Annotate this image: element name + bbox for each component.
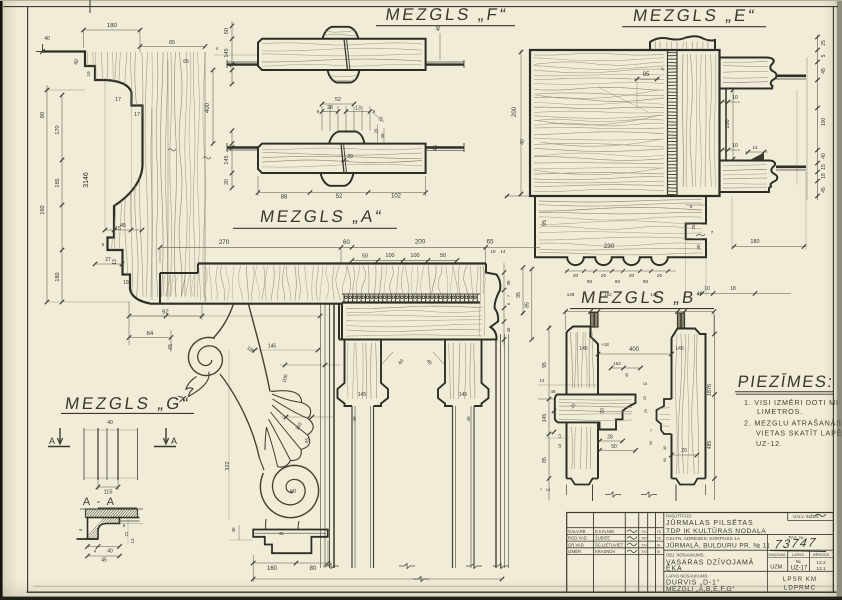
svg-text:20: 20 — [224, 179, 230, 185]
svg-text:95: 95 — [542, 362, 548, 368]
svg-text:30: 30 — [380, 133, 385, 139]
svg-text:270: 270 — [219, 239, 230, 246]
svg-text:LAPAS: LAPAS — [792, 553, 804, 557]
svg-text:17: 17 — [134, 112, 140, 118]
svg-text:40: 40 — [107, 420, 113, 426]
svg-text:65: 65 — [487, 239, 494, 246]
svg-text:OBJ. NOSAUKUMS:: OBJ. NOSAUKUMS: — [666, 553, 705, 558]
svg-text:95: 95 — [516, 292, 522, 298]
svg-text:88: 88 — [281, 195, 288, 201]
svg-text:JŪRMALAS PILSĒTAS: JŪRMALAS PILSĒTAS — [666, 519, 754, 527]
svg-text:92: 92 — [162, 309, 170, 315]
svg-text:148: 148 — [650, 292, 658, 297]
svg-text:162: 162 — [613, 361, 621, 366]
svg-text:10: 10 — [704, 286, 710, 292]
svg-text:7/II: 7/II — [641, 549, 647, 554]
svg-text:40: 40 — [821, 153, 827, 159]
svg-text:ĒKA: ĒKA — [666, 564, 682, 572]
svg-text:GALV. INŽEN.: GALV. INŽEN. — [793, 514, 820, 519]
svg-text:40: 40 — [352, 416, 357, 422]
svg-text:485: 485 — [707, 441, 713, 450]
svg-text:40: 40 — [231, 527, 236, 533]
svg-text:18: 18 — [821, 173, 827, 179]
svg-text:21: 21 — [124, 531, 129, 537]
svg-text:152: 152 — [604, 292, 612, 297]
svg-text:5: 5 — [821, 54, 827, 57]
svg-text:145: 145 — [459, 392, 468, 398]
svg-text:MEZGLS „E“: MEZGLS „E“ — [632, 6, 758, 25]
svg-text:A: A — [171, 436, 177, 446]
svg-text:2. MEZGLU ATRAŠANĀS: 2. MEZGLU ATRAŠANĀS — [744, 419, 842, 428]
svg-text:18: 18 — [730, 286, 736, 292]
svg-text:20: 20 — [573, 273, 579, 279]
svg-text:100: 100 — [385, 253, 394, 259]
svg-text:60: 60 — [587, 279, 593, 285]
svg-text:170: 170 — [55, 125, 61, 134]
svg-text:№: № — [796, 559, 801, 564]
svg-text:MEZGLS „G“: MEZGLS „G“ — [64, 394, 192, 413]
svg-text:45: 45 — [506, 327, 511, 333]
svg-text:45: 45 — [101, 558, 107, 564]
svg-text:45: 45 — [624, 372, 629, 377]
svg-text:30: 30 — [648, 440, 653, 445]
svg-text:MEZGLS „F“: MEZGLS „F“ — [384, 5, 509, 24]
svg-text:13: 13 — [130, 538, 135, 544]
svg-text:UZ-12.: UZ-12. — [756, 439, 783, 448]
svg-text:28: 28 — [327, 105, 333, 111]
svg-text:145: 145 — [268, 344, 277, 350]
svg-text:40: 40 — [74, 59, 80, 65]
svg-text:20: 20 — [629, 273, 635, 279]
svg-text:TDP IK KULTŪRAS NODAĻA: TDP IK KULTŪRAS NODAĻA — [666, 527, 766, 535]
svg-text:45: 45 — [436, 25, 442, 31]
svg-text:25: 25 — [642, 395, 647, 400]
svg-text:IZMĒR.: IZMĒR. — [568, 549, 582, 554]
svg-text:95: 95 — [643, 72, 650, 78]
svg-text:MAŞGWA: MAŞGWA — [768, 553, 786, 557]
svg-text:PASŪTĪTĀJS:: PASŪTĪTĀJS: — [666, 513, 692, 518]
svg-text:MĒRODS: MĒRODS — [813, 553, 830, 557]
svg-text:ŠC.LIETUVIET: ŠC.LIETUVIET — [595, 542, 624, 547]
svg-text:LPSR KM: LPSR KM — [783, 576, 817, 583]
svg-text:80: 80 — [40, 112, 46, 118]
svg-text:25: 25 — [691, 224, 696, 230]
svg-text:148: 148 — [567, 292, 575, 297]
svg-text:A: A — [49, 436, 55, 446]
svg-text:60: 60 — [224, 28, 230, 34]
svg-text:12: 12 — [546, 487, 551, 492]
svg-text:40: 40 — [44, 36, 50, 42]
svg-text:145: 145 — [224, 48, 230, 57]
svg-text:45: 45 — [662, 445, 667, 450]
svg-text:VIETAS SKATĪT LAPĒ: VIETAS SKATĪT LAPĒ — [756, 429, 842, 438]
svg-text:17: 17 — [115, 97, 121, 103]
svg-text:40: 40 — [520, 139, 526, 145]
svg-text:GR.VAD: GR.VAD — [568, 542, 584, 547]
svg-text:13.1: 13.1 — [816, 566, 826, 572]
svg-text:180: 180 — [55, 272, 61, 281]
svg-text:14: 14 — [500, 249, 506, 254]
svg-text:LIMETROS.: LIMETROS. — [757, 407, 803, 416]
svg-text:45: 45 — [433, 145, 439, 151]
svg-text:UZ-17: UZ-17 — [791, 566, 808, 572]
svg-text:45: 45 — [278, 531, 284, 536]
svg-text:13.2: 13.2 — [816, 560, 826, 566]
svg-text:25: 25 — [643, 408, 648, 413]
svg-text:100: 100 — [410, 253, 419, 259]
svg-text:52: 52 — [336, 194, 343, 200]
svg-text:JŪRMALĀ, BULDURU PR. № 11: JŪRMALĀ, BULDURU PR. № 11 — [666, 542, 770, 550]
svg-text:145: 145 — [542, 414, 548, 423]
svg-text:20: 20 — [681, 448, 687, 454]
svg-text:12: 12 — [557, 433, 562, 438]
svg-text:7/II: 7/II — [641, 536, 647, 541]
svg-text:52: 52 — [335, 97, 341, 103]
svg-text:60: 60 — [662, 457, 667, 462]
svg-text:60: 60 — [343, 239, 350, 246]
svg-text:65: 65 — [169, 40, 175, 46]
svg-text:70: 70 — [600, 408, 606, 414]
svg-text:45: 45 — [120, 223, 126, 229]
svg-text:ГII: ГII — [657, 529, 661, 534]
svg-text:10: 10 — [86, 71, 91, 77]
svg-text:38: 38 — [506, 280, 511, 286]
svg-text:145: 145 — [675, 346, 684, 352]
svg-text:13: 13 — [355, 106, 361, 112]
svg-text:100: 100 — [821, 118, 827, 127]
svg-text:18: 18 — [557, 443, 562, 448]
svg-text:100: 100 — [725, 119, 731, 128]
svg-text:KRASNOV: KRASNOV — [595, 549, 616, 554]
svg-text:64: 64 — [146, 331, 154, 337]
svg-text:LAPAS NOSAUKUMS:: LAPAS NOSAUKUMS: — [666, 574, 709, 579]
svg-text:28: 28 — [607, 435, 613, 441]
svg-text:1876: 1876 — [707, 384, 713, 396]
svg-text:160: 160 — [267, 566, 278, 572]
svg-text:MEZGLS „B“: MEZGLS „B“ — [580, 288, 706, 307]
svg-text:200: 200 — [512, 106, 518, 117]
svg-text:E.KALNIŅ: E.KALNIŅ — [595, 529, 614, 534]
svg-text:27: 27 — [105, 257, 111, 263]
svg-text:145: 145 — [358, 392, 367, 398]
svg-text:ГII: ГII — [657, 536, 661, 541]
svg-text:73747: 73747 — [774, 535, 819, 551]
svg-text:20: 20 — [601, 273, 607, 279]
svg-text:180: 180 — [107, 23, 118, 29]
svg-text:50: 50 — [440, 253, 446, 259]
svg-text:PIEZĪMES:: PIEZĪMES: — [736, 372, 835, 391]
svg-text:145: 145 — [224, 155, 230, 164]
svg-text:III: III — [657, 549, 660, 554]
svg-text:15: 15 — [643, 381, 648, 386]
svg-text:LDPRMC: LDPRMC — [784, 585, 816, 592]
svg-text:40: 40 — [466, 416, 471, 422]
svg-text:95: 95 — [542, 220, 548, 226]
svg-text:14: 14 — [752, 145, 758, 150]
svg-text:50: 50 — [362, 254, 368, 260]
svg-text:3146: 3146 — [83, 172, 90, 188]
svg-text:20: 20 — [657, 273, 663, 279]
svg-text:180: 180 — [750, 239, 759, 245]
svg-text:7/II: 7/II — [641, 542, 647, 547]
svg-text:200: 200 — [415, 239, 426, 246]
svg-text:50: 50 — [611, 444, 617, 450]
svg-text:85: 85 — [525, 302, 531, 308]
svg-text:A - A: A - A — [83, 496, 117, 508]
svg-text:102: 102 — [391, 194, 402, 200]
svg-text:ŠUBITE: ŠUBITE — [595, 536, 610, 541]
svg-text:45: 45 — [821, 187, 827, 193]
svg-text:25: 25 — [821, 40, 827, 46]
svg-text:185: 185 — [55, 178, 61, 187]
svg-text:115: 115 — [104, 490, 113, 496]
svg-text:UZM.: UZM. — [770, 565, 784, 571]
svg-text:19: 19 — [490, 249, 496, 254]
svg-text:GALV.RB: GALV.RB — [568, 529, 586, 534]
svg-text:III: III — [657, 542, 660, 547]
svg-text:80: 80 — [310, 566, 317, 572]
svg-text:65: 65 — [183, 59, 189, 65]
svg-text:40: 40 — [107, 549, 113, 555]
svg-text:+18: +18 — [601, 342, 609, 347]
svg-text:85: 85 — [542, 457, 548, 463]
svg-text:14: 14 — [539, 378, 545, 383]
svg-text:400: 400 — [629, 347, 640, 353]
svg-text:26: 26 — [374, 128, 379, 134]
svg-text:45: 45 — [821, 68, 827, 74]
svg-text:400: 400 — [205, 102, 211, 113]
svg-text:322: 322 — [225, 461, 231, 470]
svg-text:MEZGLI „A,B,E,F,G“: MEZGLI „A,B,E,F,G“ — [666, 586, 735, 593]
svg-text:MEZGLS „A“: MEZGLS „A“ — [259, 207, 385, 226]
svg-text:ROD.VAD: ROD.VAD — [568, 536, 587, 541]
svg-text:60: 60 — [615, 279, 621, 285]
svg-text:7/II: 7/II — [641, 529, 647, 534]
svg-text:230: 230 — [604, 243, 615, 250]
svg-text:15: 15 — [821, 164, 827, 170]
svg-text:60: 60 — [643, 279, 649, 285]
svg-text:48: 48 — [550, 389, 556, 394]
svg-text:30: 30 — [696, 244, 701, 250]
svg-text:CELTN. ADRESES: KORPUSS 1A: CELTN. ADRESES: KORPUSS 1A — [666, 536, 741, 542]
svg-text:160: 160 — [40, 205, 46, 214]
svg-text:145: 145 — [579, 346, 588, 352]
svg-text:20: 20 — [347, 154, 353, 160]
svg-text:1. VISI IZMĒRI DOTI MI-: 1. VISI IZMĒRI DOTI MI- — [744, 398, 842, 407]
svg-text:18: 18 — [123, 280, 129, 286]
